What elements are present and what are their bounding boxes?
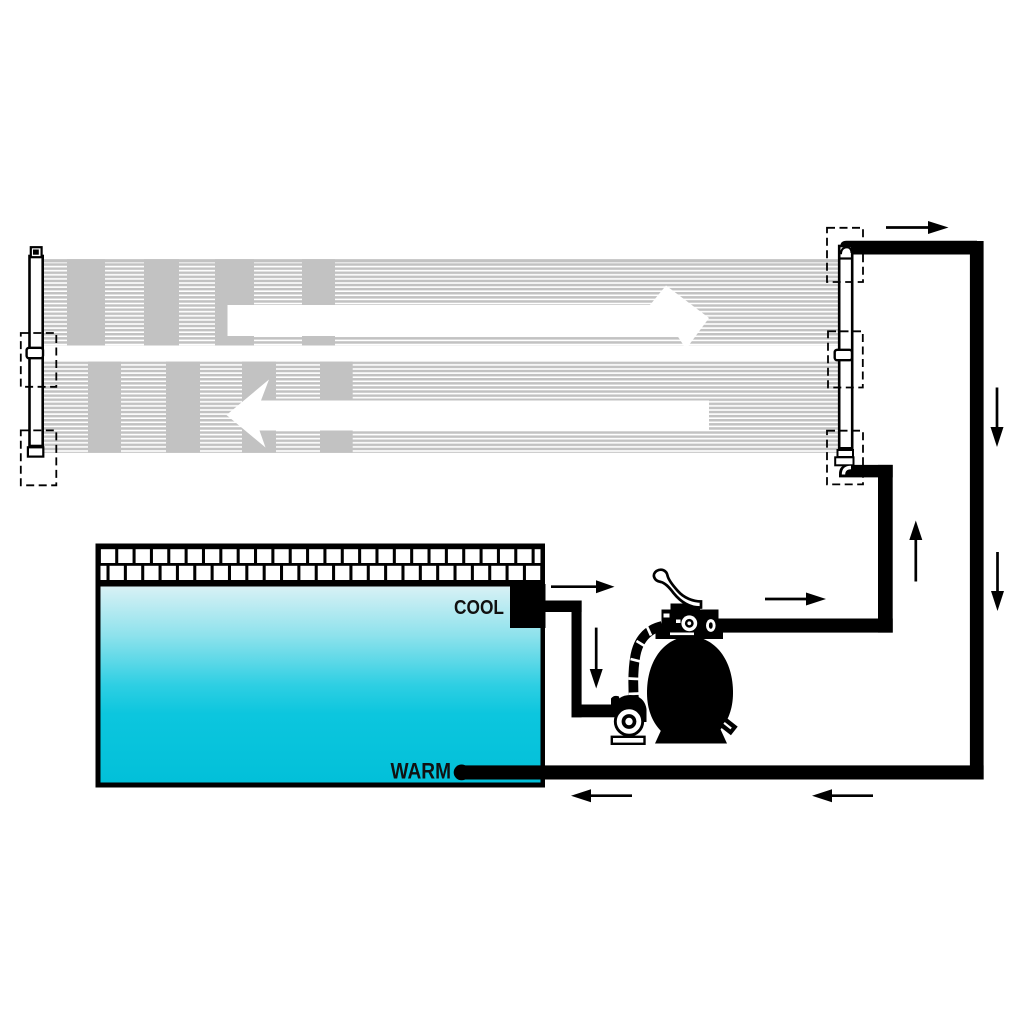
svg-text:WARM: WARM bbox=[391, 759, 452, 784]
svg-text:COOL: COOL bbox=[454, 596, 504, 619]
